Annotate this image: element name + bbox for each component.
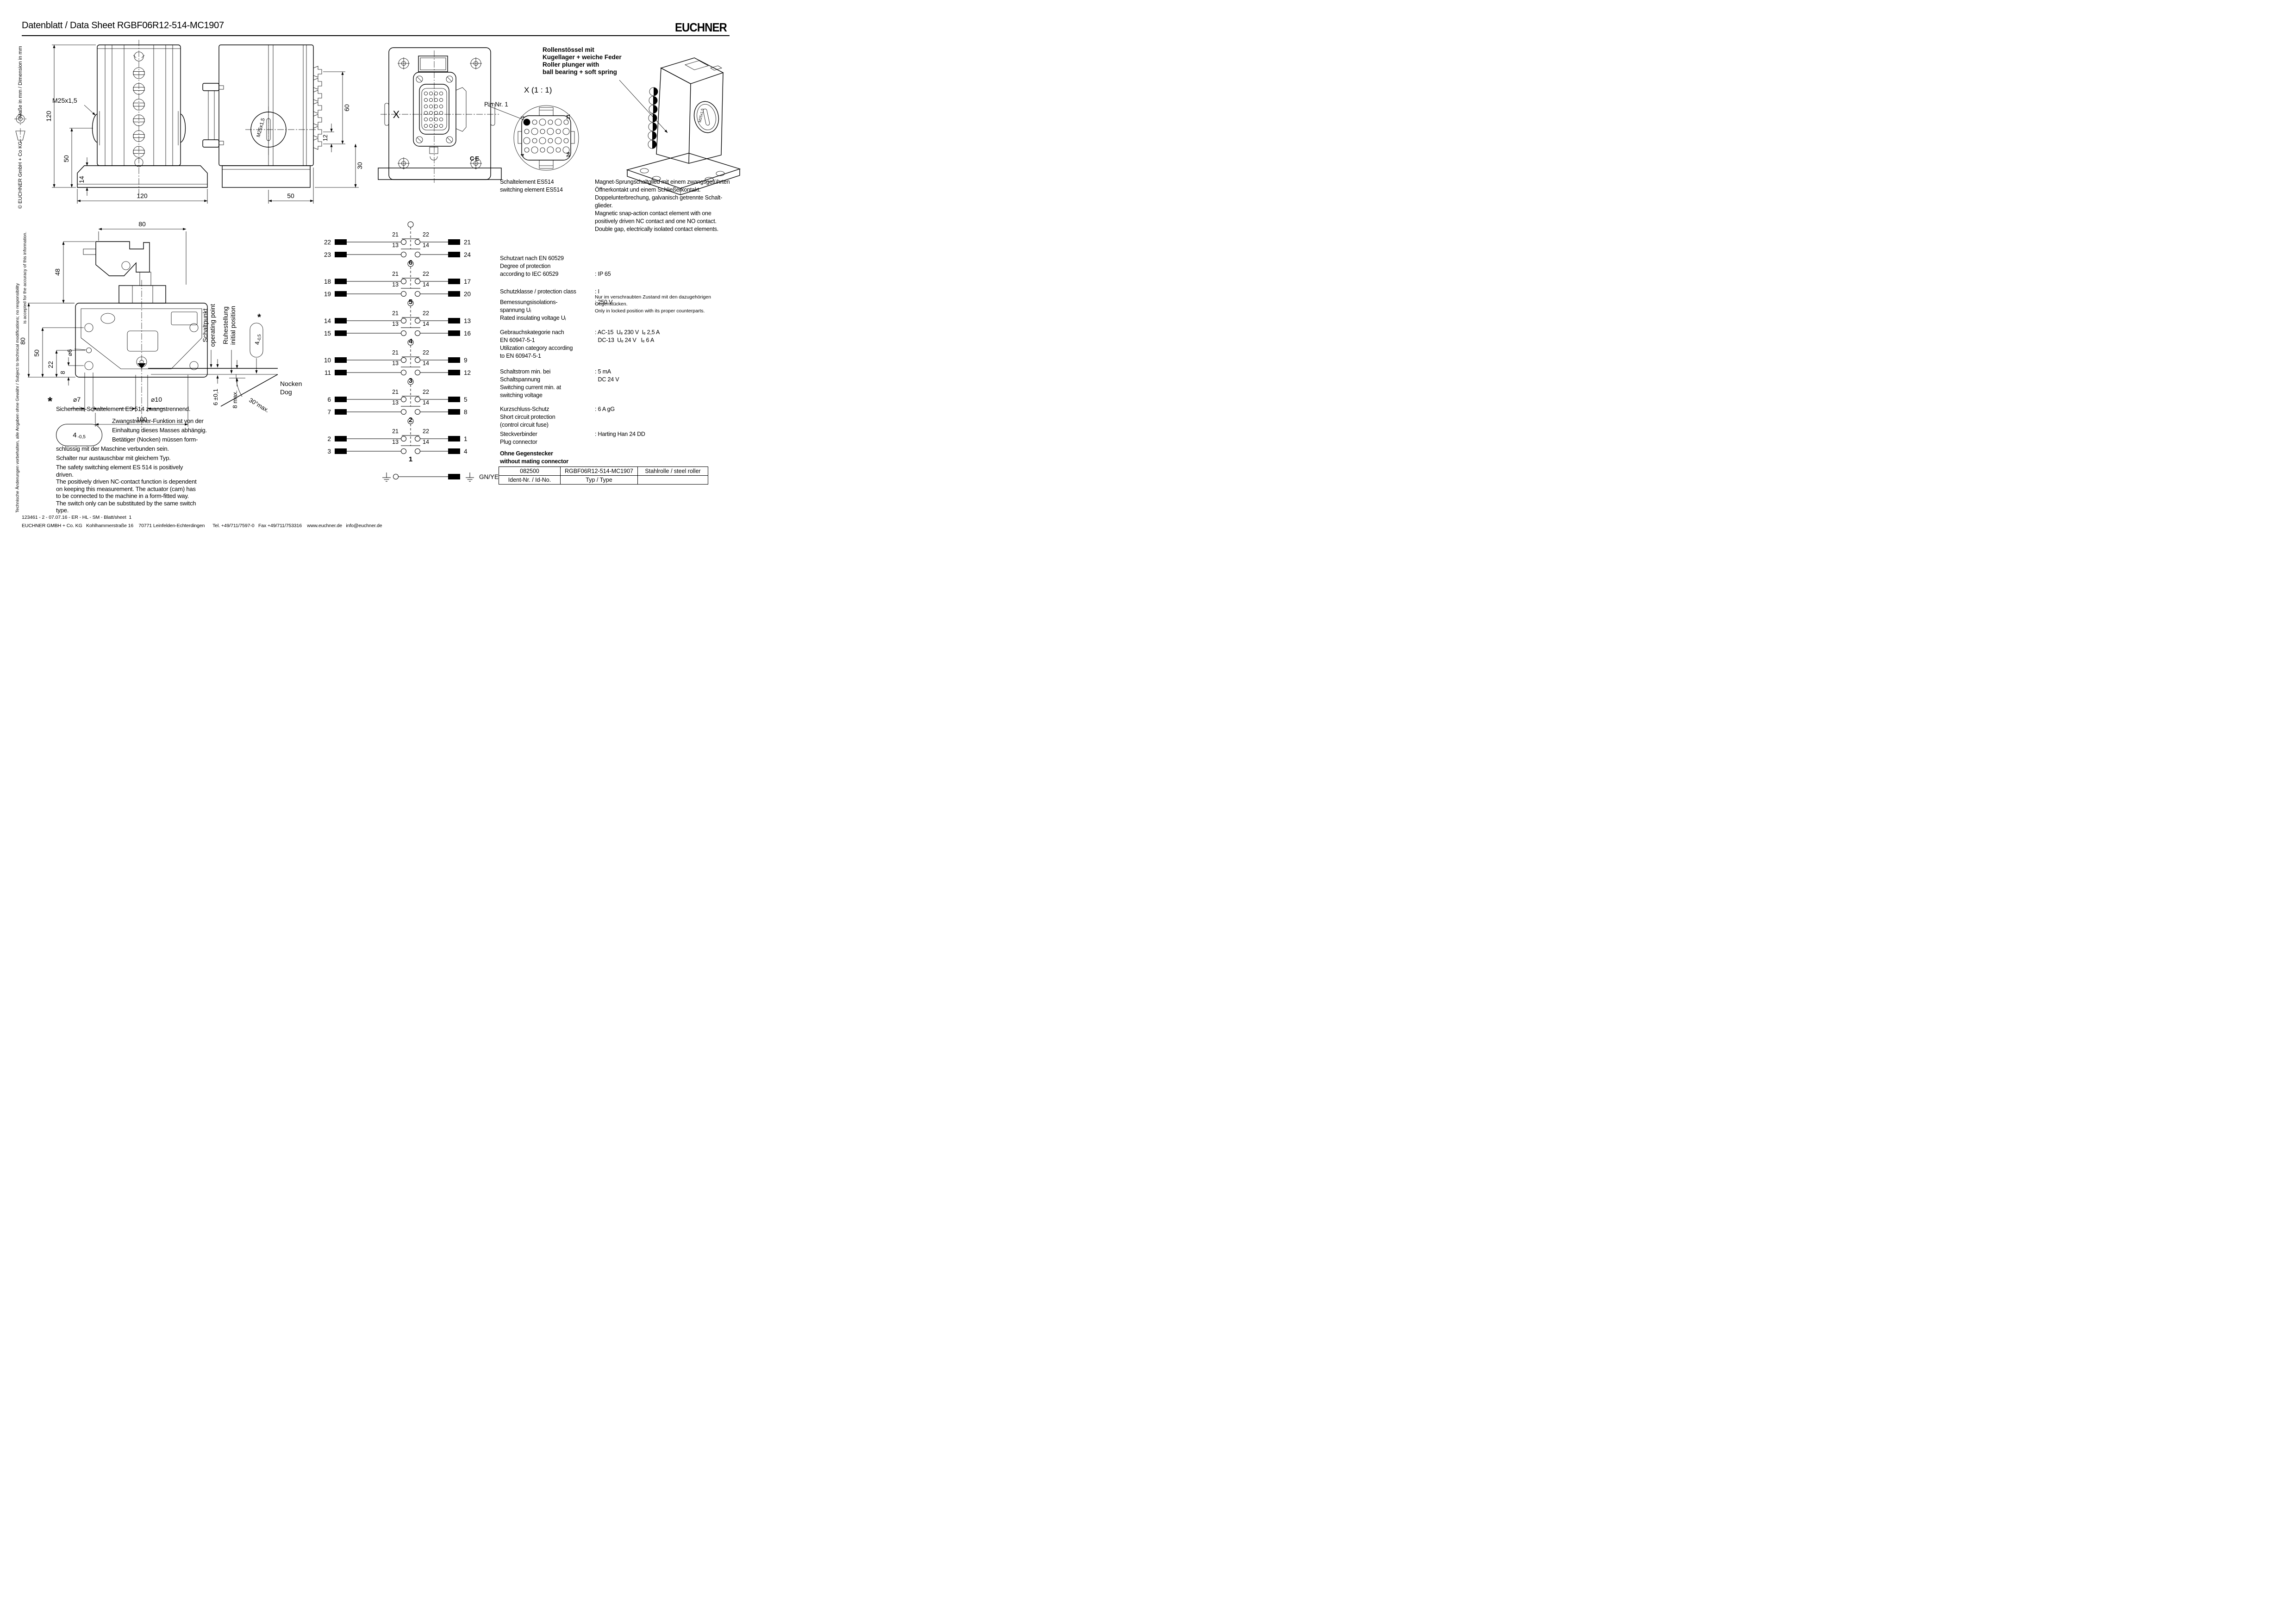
spec-label: Gebrauchskategorie nachEN 60947-5-1Utili… (500, 329, 595, 360)
terminal-number: 20 (464, 291, 471, 298)
datasheet-page: Datenblatt / Data Sheet RGBF06R12-514-MC… (0, 0, 765, 541)
roller-value: Stahlrolle / steel roller (638, 467, 708, 476)
terminal-number: 11 (324, 369, 331, 376)
detail-view-drawing: X (1 : 1) 1 21 4 24 (479, 80, 609, 179)
svg-text:22: 22 (423, 349, 429, 356)
ident-table: 082500 RGBF06R12-514-MC1907 Stahlrolle /… (499, 466, 708, 485)
svg-text:50: 50 (287, 192, 294, 199)
terminal-number: 2 (327, 435, 331, 442)
svg-text:M25x1,5: M25x1,5 (698, 108, 705, 123)
svg-text:48: 48 (54, 268, 61, 276)
svg-text:24: 24 (566, 152, 571, 157)
svg-text:21: 21 (566, 114, 571, 119)
svg-text:4: 4 (520, 154, 525, 156)
svg-text:13: 13 (392, 399, 399, 406)
terminal-number: 5 (464, 396, 468, 403)
svg-text:*: * (257, 312, 261, 323)
spec-value: : 250 V (595, 298, 757, 322)
terminal-number: 9 (464, 357, 468, 364)
circuit-diagram: 2221232421221314618171920212213145141315… (317, 221, 512, 490)
spec-label: Schaltstrom min. beiSchaltspannungSwitch… (500, 368, 595, 399)
contact-group-number: 1 (409, 455, 412, 463)
brand-logo: EUCHNER (675, 20, 727, 35)
document-type-label: Datenblatt / Data Sheet (22, 20, 115, 31)
pin-number-label: Pin Nr. 1 (484, 101, 508, 108)
terminal-number: 1 (464, 435, 468, 442)
svg-text:1: 1 (520, 116, 525, 118)
front-view-drawing: 120 50 14 120 M25x1,5 (25, 42, 215, 213)
svg-text:22: 22 (423, 428, 429, 435)
gap-dim-label: 4-0,5 (254, 334, 262, 345)
footnote-english-block: The safety switching element ES 514 is p… (56, 464, 197, 514)
svg-text:12: 12 (322, 135, 329, 141)
svg-text:⌀7: ⌀7 (73, 396, 81, 403)
terminal-number: 3 (327, 448, 331, 455)
spec-row-utilization-category: Gebrauchskategorie nachEN 60947-5-1Utili… (500, 329, 757, 360)
svg-text:14: 14 (423, 360, 429, 367)
terminal-number: 14 (324, 317, 331, 324)
terminal-number: 23 (324, 251, 331, 258)
part-number-title: RGBF06R12-514-MC1907 (117, 20, 224, 31)
terminal-number: 8 (464, 409, 468, 416)
detail-title: X (1 : 1) (524, 86, 552, 94)
svg-text:⌀10: ⌀10 (151, 396, 162, 403)
svg-text:initial position: initial position (229, 306, 237, 345)
dimension-unit-note: Maße in mm / Dimension in mm (18, 46, 23, 118)
contact-group-number: 4 (409, 337, 413, 345)
svg-text:8 max.: 8 max. (231, 390, 238, 408)
svg-text:30°max.: 30°max. (248, 397, 270, 414)
svg-text:80: 80 (19, 337, 26, 345)
spec-label: Kurzschluss-SchutzShort circuit protecti… (500, 405, 595, 429)
svg-text:80: 80 (138, 220, 146, 228)
spec-label: Schaltelement ES514switching element ES5… (500, 178, 595, 233)
svg-text:Schaltpunkt: Schaltpunkt (201, 308, 209, 342)
svg-text:21: 21 (392, 231, 399, 238)
spec-value: : AC-15 Uₑ 230 V Iₑ 2,5 A DC-13 Uₑ 24 V … (595, 329, 757, 360)
contact-group-number: 2 (409, 416, 412, 424)
type-label: Typ / Type (561, 476, 638, 485)
svg-text:21: 21 (392, 349, 399, 356)
svg-text:22: 22 (423, 310, 429, 317)
spec-label: Ohne Gegensteckerwithout mating connecto… (500, 450, 639, 466)
mounting-holes (85, 323, 198, 370)
svg-text:13: 13 (392, 281, 399, 288)
contact-group-number: 5 (409, 298, 412, 306)
ident-number-label: Ident-Nr. / Id-No. (499, 476, 561, 485)
terminal-number: 7 (327, 409, 331, 416)
terminal-number: 18 (324, 278, 331, 285)
svg-text:13: 13 (392, 439, 399, 445)
svg-text:60: 60 (343, 104, 350, 112)
footnote-indented-block: Zwangstrenner-Funktion ist von derEinhal… (112, 417, 207, 444)
terminal-number: 10 (324, 357, 331, 364)
svg-text:30: 30 (356, 162, 363, 169)
svg-text:22: 22 (423, 231, 429, 238)
svg-text:21: 21 (392, 271, 399, 277)
contact-group-number: 3 (409, 377, 412, 385)
pin-1-filled (524, 119, 530, 125)
svg-text:21: 21 (392, 389, 399, 395)
spec-row-without-mating-connector: Ohne Gegensteckerwithout mating connecto… (500, 450, 757, 466)
svg-text:22: 22 (423, 389, 429, 395)
svg-text:8: 8 (59, 371, 66, 374)
svg-text:50: 50 (33, 349, 40, 357)
corner-screws (398, 57, 482, 169)
spec-value: : Harting Han 24 DD (595, 430, 757, 446)
spec-value: : 6 A gG (595, 405, 757, 429)
connector-pins (424, 92, 443, 127)
spec-label: Bemessungsisolations-spannung UᵢRated in… (500, 298, 595, 322)
svg-text:21: 21 (392, 428, 399, 435)
side-view-drawing: M25x1,5 60 12 30 50 (199, 42, 366, 213)
svg-text:Ruhestellung: Ruhestellung (222, 306, 229, 344)
terminal-number: 15 (324, 330, 331, 337)
copyright-note: © EUCHNER GmbH + Co KG (18, 141, 23, 209)
terminal-number: 22 (324, 239, 331, 246)
ident-number-value: 082500 (499, 467, 561, 476)
spec-value: : I (595, 288, 757, 296)
svg-text:14: 14 (423, 321, 429, 327)
spec-row-short-circuit-protection: Kurzschluss-SchutzShort circuit protecti… (500, 405, 757, 429)
footnote-asterisk: * (48, 394, 52, 409)
spec-row-protection-class: Schutzklasse / protection class : I (500, 288, 757, 296)
svg-text:13: 13 (392, 242, 399, 249)
terminal-number: 6 (327, 396, 331, 403)
ce-mark: CE (470, 155, 480, 162)
svg-text:M25x1,5: M25x1,5 (52, 97, 77, 104)
svg-text:Nocken: Nocken (280, 380, 302, 387)
roller-callout: Rollenstössel mitKugellager + weiche Fed… (543, 46, 644, 76)
terminal-number: 17 (464, 278, 471, 285)
empty-cell (638, 476, 708, 485)
svg-text:14: 14 (423, 242, 429, 249)
spec-label: SteckverbinderPlug connector (500, 430, 595, 446)
svg-text:⌀6: ⌀6 (66, 349, 73, 356)
svg-text:M25x1,5: M25x1,5 (256, 118, 266, 138)
svg-text:13: 13 (392, 360, 399, 367)
svg-text:120: 120 (45, 111, 52, 122)
svg-text:14: 14 (423, 399, 429, 406)
spec-value: : 5 mA DC 24 V (595, 368, 757, 399)
terminal-number: 16 (464, 330, 471, 337)
projection-symbol-icon (14, 112, 27, 145)
spec-label: Schutzklasse / protection class (500, 288, 595, 296)
svg-text:50: 50 (62, 155, 70, 162)
terminal-number: 19 (324, 291, 331, 298)
footnote-line-1: Sicherheits-Schaltelement ES 514 zwangst… (56, 404, 190, 414)
detail-pins (524, 119, 569, 153)
terminal-number: 21 (464, 239, 471, 246)
terminal-number: 12 (464, 369, 471, 376)
terminal-number: 24 (464, 251, 471, 258)
svg-text:6 ±0,1: 6 ±0,1 (212, 389, 219, 405)
section-label: X (393, 109, 400, 120)
footer-address-line: EUCHNER GMBH + Co. KG Kohlhammerstraße 1… (22, 523, 382, 529)
svg-text:14: 14 (423, 439, 429, 445)
spec-row-plug-connector: SteckverbinderPlug connector : Harting H… (500, 430, 757, 446)
terminal-number: 13 (464, 317, 471, 324)
spec-row-switching-current: Schaltstrom min. beiSchaltspannungSwitch… (500, 368, 757, 399)
svg-text:14: 14 (78, 176, 85, 183)
svg-text:21: 21 (392, 310, 399, 317)
header-rule (22, 35, 730, 36)
svg-text:120: 120 (137, 192, 148, 199)
spec-value: Magnet-Sprungschaltglied mit einem zwang… (595, 178, 757, 233)
spec-row-switching-element: Schaltelement ES514switching element ES5… (500, 178, 757, 233)
svg-text:13: 13 (392, 321, 399, 327)
footnote-full-block: schlüssig mit der Maschine verbunden sei… (56, 444, 171, 463)
roller-plungers (648, 87, 658, 149)
footer-revision-line: 123461 - 2 - 07.07.16 - ER - HL - SM - B… (22, 515, 131, 520)
svg-text:operating point: operating point (209, 304, 216, 347)
footnote-gap-oval: 4-0,5 (56, 424, 102, 446)
svg-text:14: 14 (423, 281, 429, 288)
svg-text:22: 22 (423, 271, 429, 277)
ground-wire-label: GN/YE (479, 473, 499, 480)
type-value: RGBF06R12-514-MC1907 (561, 467, 638, 476)
spec-row-insulating-voltage: Bemessungsisolations-spannung UᵢRated in… (500, 298, 757, 322)
contact-group-number: 6 (409, 259, 412, 267)
terminal-number: 4 (464, 448, 468, 455)
svg-text:22: 22 (47, 361, 54, 368)
svg-text:Dog: Dog (280, 388, 292, 396)
